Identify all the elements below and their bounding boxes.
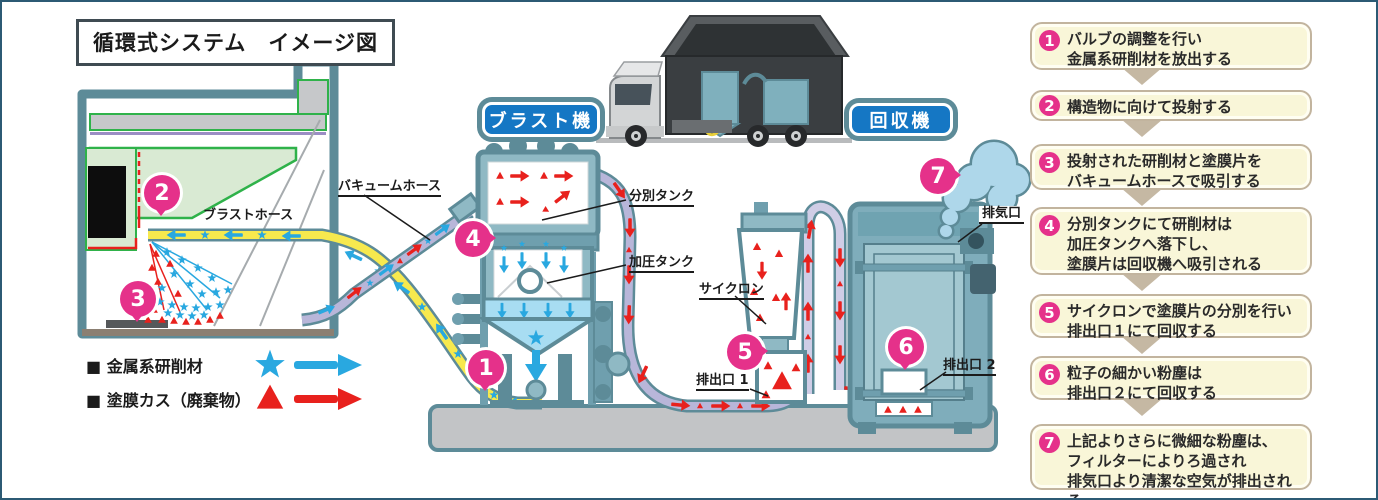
step-4-line: 塗膜片は回収機へ吸引される [1067,254,1262,274]
triangle-icon [254,383,286,415]
step-3-number: 3 [1039,152,1060,173]
badge-5: 5 [727,334,763,370]
step-2: 2 構造物に向けて投射する [1030,90,1312,121]
blue-arrow-icon [294,354,364,376]
pressure-tank-label: 加圧タンク [629,256,694,273]
badge-1: 1 [468,350,504,386]
badge-4: 4 [455,221,491,257]
legend-row-abrasive: ■ 金属系研削材 [86,348,364,382]
step-4-number: 4 [1039,215,1060,236]
truck [596,16,852,147]
recovery-machine-label: 回収機 [849,103,953,136]
step-1-line: 金属系研削材を放出する [1067,49,1232,69]
badge-7-number: 7 [930,164,945,189]
blast-hose-label: ブラストホース [203,209,293,222]
badge-6: 6 [888,329,924,365]
step-6-line: 粒子の細かい粉塵は [1067,363,1217,383]
step-2-text: 構造物に向けて投射する [1067,95,1232,117]
cyclone-unit [739,202,806,402]
step-5-text: サイクロンで塗膜片の分別を行い 排出口１にて回収する [1067,299,1292,333]
step-7-line: 上記よりさらに微細な粉塵は、 [1067,431,1304,451]
cyclone-label: サイクロン [699,283,764,300]
step-2-number: 2 [1039,95,1060,116]
step-1-line: バルブの調整を行い [1067,29,1232,49]
legend-abrasive-label: ■ 金属系研削材 [86,353,254,377]
step-7-line: 排気口より清潔な空気が排出される [1067,471,1304,500]
blast-machine-label: ブラスト機 [482,102,600,137]
outlet1-label: 排出口 1 [696,374,749,391]
step-7-line: フィルターによりろ過され [1067,451,1304,471]
step-5-line: サイクロンで塗膜片の分別を行い [1067,301,1292,321]
process-steps-panel: 1 バルブの調整を行い 金属系研削材を放出する 2 構造物に向けて投射する 3 … [1030,2,1312,500]
badge-4-number: 4 [465,227,480,252]
step-5-line: 排出口１にて回収する [1067,321,1292,341]
step-2-line: 構造物に向けて投射する [1067,97,1232,117]
step-connector-arrow [1121,119,1163,137]
badge-3: 3 [120,281,156,317]
exhaust-port-label: 排気口 [979,206,1024,224]
step-connector-arrow [1121,273,1163,291]
badge-3-number: 3 [130,287,145,312]
step-4: 4 分別タンクにて研削材は 加圧タンクへ落下し、 塗膜片は回収機へ吸引される [1030,207,1312,275]
step-3: 3 投射された研削材と塗膜片を バキュームホースで吸引する [1030,144,1312,190]
step-6-text: 粒子の細かい粉塵は 排出口２にて回収する [1067,361,1217,395]
step-3-text: 投射された研削材と塗膜片を バキュームホースで吸引する [1067,149,1262,185]
step-7-text: 上記よりさらに微細な粉塵は、 フィルターによりろ過され 排気口より清潔な空気が排… [1067,429,1304,485]
legend-waste-label: ■ 塗膜カス（廃棄物） [86,387,254,411]
step-1-text: バルブの調整を行い 金属系研削材を放出する [1067,27,1232,65]
badge-7: 7 [920,158,956,194]
step-4-line: 加圧タンクへ落下し、 [1067,234,1262,254]
step-7: 7 上記よりさらに微細な粉塵は、 フィルターによりろ過され 排気口より清潔な空気… [1030,424,1312,490]
badge-5-number: 5 [737,340,752,365]
legend-row-waste: ■ 塗膜カス（廃棄物） [86,382,364,416]
step-6-number: 6 [1039,364,1060,385]
step-5-number: 5 [1039,302,1060,323]
red-arrow-icon [294,388,364,410]
step-1-number: 1 [1039,30,1060,51]
step-6-line: 排出口２にて回収する [1067,383,1217,403]
page-title: 循環式システム イメージ図 [76,19,395,66]
vacuum-hose-label: バキュームホース [338,180,441,197]
step-4-line: 分別タンクにて研削材は [1067,214,1262,234]
circulation-system-diagram: 循環式システム イメージ図 ブラスト機 回収機 バキュームホース ブラストホース… [0,0,1378,500]
step-4-text: 分別タンクにて研削材は 加圧タンクへ落下し、 塗膜片は回収機へ吸引される [1067,212,1262,270]
step-3-line: 投射された研削材と塗膜片を [1067,151,1262,171]
badge-6-number: 6 [898,335,913,360]
legend: ■ 金属系研削材 ■ 塗膜カス（廃棄物） [86,348,364,416]
badge-1-number: 1 [478,356,493,381]
step-6: 6 粒子の細かい粉塵は 排出口２にて回収する [1030,356,1312,400]
star-icon [254,349,286,381]
badge-2: 2 [144,175,180,211]
recovery-machine [850,204,996,434]
step-1: 1 バルブの調整を行い 金属系研削材を放出する [1030,22,1312,70]
outlet2-label: 排出口 2 [943,359,996,376]
step-5: 5 サイクロンで塗膜片の分別を行い 排出口１にて回収する [1030,294,1312,338]
badge-2-number: 2 [154,181,169,206]
step-7-number: 7 [1039,432,1060,453]
separation-tank-label: 分別タンク [629,190,694,207]
step-3-line: バキュームホースで吸引する [1067,171,1262,191]
